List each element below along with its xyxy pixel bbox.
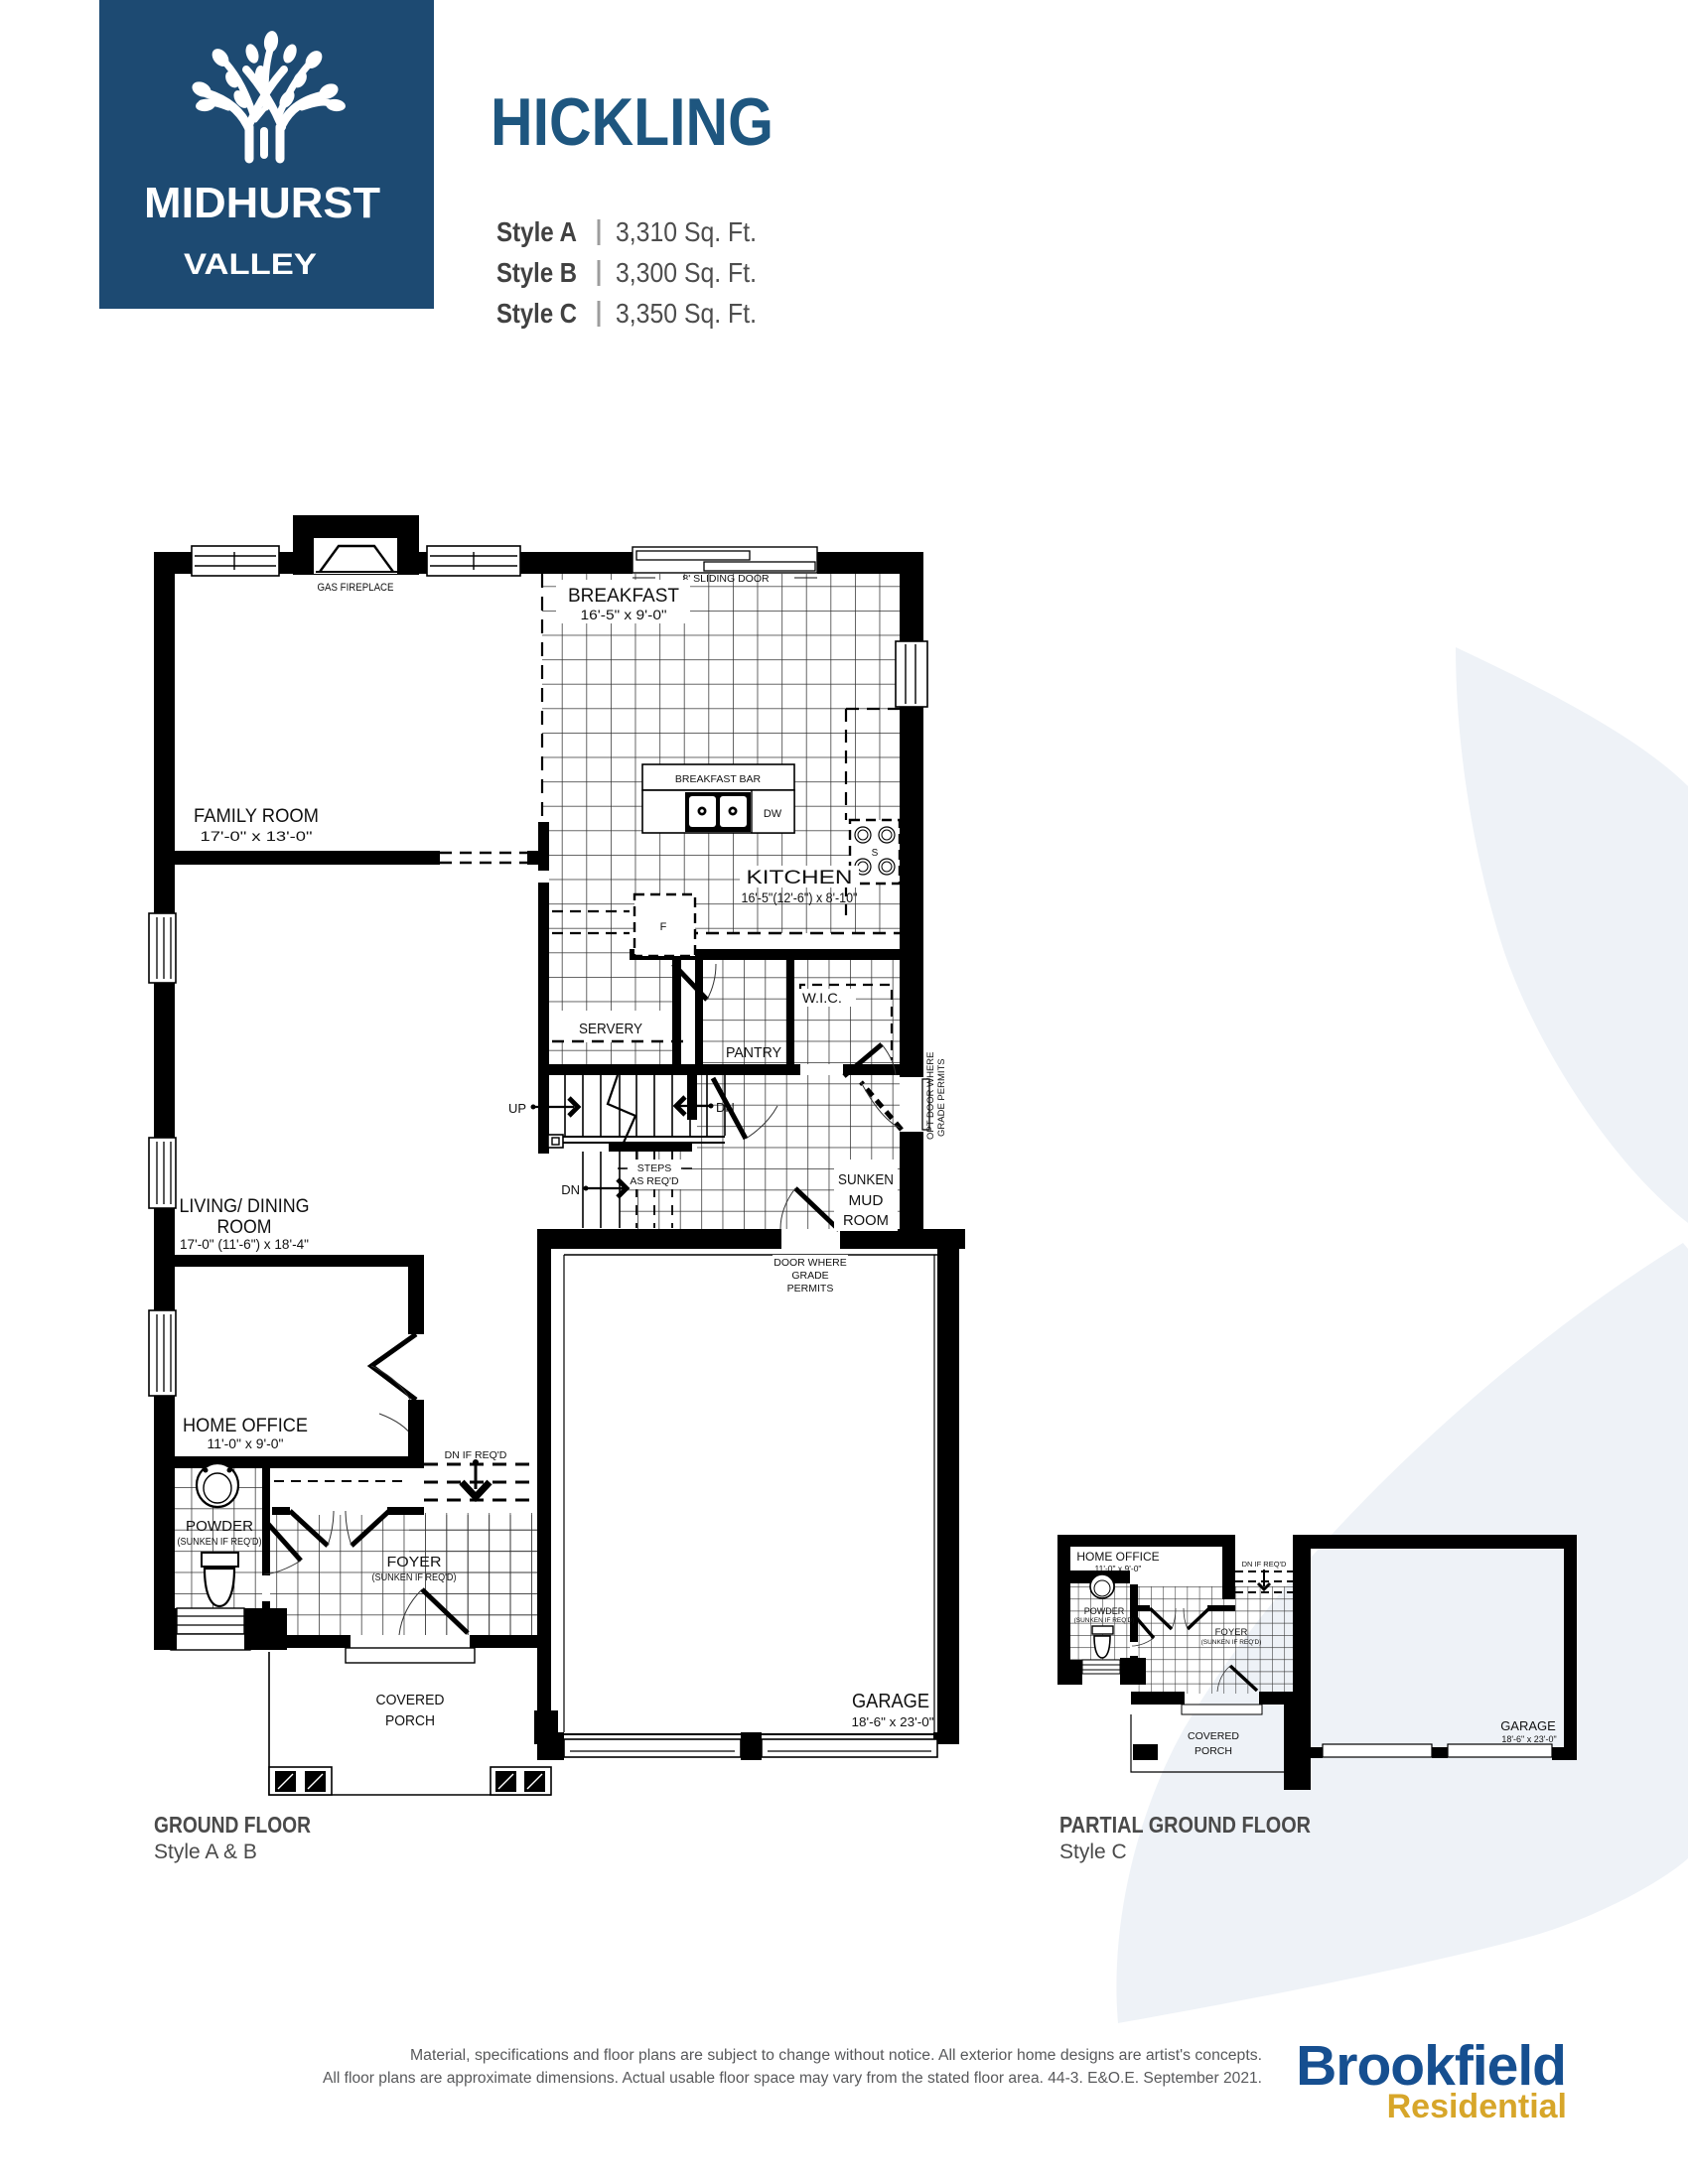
svg-text:GRADE: GRADE	[791, 1270, 828, 1282]
svg-text:POWDER: POWDER	[1084, 1606, 1125, 1616]
svg-text:POWDER: POWDER	[186, 1519, 253, 1535]
svg-text:DW: DW	[764, 808, 782, 820]
svg-text:3,310 Sq. Ft.: 3,310 Sq. Ft.	[616, 216, 757, 247]
svg-text:ROOM: ROOM	[843, 1213, 889, 1229]
svg-text:DN IF REQ'D: DN IF REQ'D	[445, 1449, 507, 1461]
svg-text:(SUNKEN IF REQ'D): (SUNKEN IF REQ'D)	[1201, 1639, 1262, 1646]
svg-text:BREAKFAST: BREAKFAST	[568, 586, 679, 607]
svg-text:COVERED: COVERED	[376, 1693, 445, 1708]
svg-text:GROUND FLOOR: GROUND FLOOR	[154, 1812, 311, 1838]
svg-text:HICKLING: HICKLING	[491, 84, 774, 160]
svg-text:S: S	[872, 848, 879, 859]
svg-text:FOYER: FOYER	[387, 1554, 442, 1570]
svg-text:HOME OFFICE: HOME OFFICE	[183, 1416, 308, 1436]
svg-text:18'-6" x 23'-0": 18'-6" x 23'-0"	[852, 1714, 934, 1729]
svg-text:BREAKFAST BAR: BREAKFAST BAR	[675, 773, 762, 785]
svg-text:FAMILY ROOM: FAMILY ROOM	[194, 806, 319, 827]
svg-text:All floor plans are approximat: All floor plans are approximate dimensio…	[323, 2070, 1262, 2087]
svg-text:MIDHURST: MIDHURST	[144, 179, 380, 227]
svg-text:3,300 Sq. Ft.: 3,300 Sq. Ft.	[616, 257, 757, 288]
svg-text:SERVERY: SERVERY	[579, 1021, 642, 1037]
svg-text:Style A: Style A	[496, 216, 577, 247]
svg-text:17'-0" x 13'-0": 17'-0" x 13'-0"	[201, 828, 313, 844]
svg-text:DN IF REQ'D: DN IF REQ'D	[1242, 1560, 1287, 1569]
svg-text:PERMITS: PERMITS	[787, 1283, 834, 1295]
svg-text:ROOM: ROOM	[217, 1217, 272, 1238]
svg-text:FOYER: FOYER	[1215, 1627, 1248, 1638]
svg-text:OPT DOOR WHERE: OPT DOOR WHERE	[925, 1052, 936, 1141]
svg-text:Style C: Style C	[1059, 1841, 1127, 1863]
svg-text:UP: UP	[508, 1101, 526, 1116]
svg-text:(SUNKEN IF REQ'D): (SUNKEN IF REQ'D)	[372, 1572, 457, 1583]
svg-text:GARAGE: GARAGE	[852, 1691, 929, 1712]
svg-text:KITCHEN: KITCHEN	[747, 868, 853, 888]
svg-text:AS REQ'D: AS REQ'D	[630, 1175, 679, 1187]
svg-text:(SUNKEN IF REQ'D): (SUNKEN IF REQ'D)	[178, 1537, 262, 1548]
svg-text:GRADE PERMITS: GRADE PERMITS	[936, 1058, 947, 1137]
svg-text:GARAGE: GARAGE	[1500, 1718, 1556, 1733]
svg-text:17'-0" (11'-6") x 18'-4": 17'-0" (11'-6") x 18'-4"	[180, 1237, 309, 1252]
svg-text:GAS FIREPLACE: GAS FIREPLACE	[318, 582, 394, 594]
svg-text:18'-6" x 23'-0": 18'-6" x 23'-0"	[1501, 1734, 1556, 1744]
svg-text:COVERED: COVERED	[1188, 1730, 1239, 1742]
svg-text:DN: DN	[561, 1182, 580, 1197]
svg-text:11'-0" x 9'-0": 11'-0" x 9'-0"	[208, 1435, 284, 1451]
svg-text:Material, specifications and f: Material, specifications and floor plans…	[410, 2047, 1262, 2064]
svg-text:PORCH: PORCH	[385, 1713, 435, 1729]
svg-text:DOOR WHERE: DOOR WHERE	[774, 1257, 847, 1269]
svg-text:PANTRY: PANTRY	[726, 1044, 781, 1061]
svg-text:11'-0" x 9'-0": 11'-0" x 9'-0"	[1095, 1564, 1142, 1573]
svg-text:3,350 Sq. Ft.: 3,350 Sq. Ft.	[616, 298, 757, 329]
svg-text:16'-5" x 9'-0": 16'-5" x 9'-0"	[581, 607, 667, 622]
svg-text:W.I.C.: W.I.C.	[802, 990, 842, 1006]
svg-text:VALLEY: VALLEY	[184, 248, 317, 281]
svg-text:Residential: Residential	[1387, 2088, 1567, 2125]
svg-text:F: F	[660, 921, 667, 933]
svg-text:(SUNKEN IF REQ'D): (SUNKEN IF REQ'D)	[1074, 1617, 1135, 1624]
svg-text:Style B: Style B	[496, 257, 577, 288]
svg-text:Style A & B: Style A & B	[154, 1841, 257, 1863]
svg-text:16'-5"(12'-6") x 8'-10": 16'-5"(12'-6") x 8'-10"	[742, 890, 858, 905]
svg-text:STEPS: STEPS	[637, 1162, 671, 1174]
svg-text:HOME OFFICE: HOME OFFICE	[1076, 1550, 1159, 1564]
svg-text:SUNKEN: SUNKEN	[838, 1172, 894, 1188]
svg-text:MUD: MUD	[849, 1193, 884, 1209]
svg-text:Style C: Style C	[496, 298, 577, 329]
svg-text:LIVING/ DINING: LIVING/ DINING	[180, 1196, 310, 1217]
svg-text:8' SLIDING DOOR: 8' SLIDING DOOR	[682, 573, 770, 585]
svg-text:PORCH: PORCH	[1195, 1745, 1232, 1757]
svg-text:PARTIAL GROUND FLOOR: PARTIAL GROUND FLOOR	[1059, 1812, 1311, 1838]
